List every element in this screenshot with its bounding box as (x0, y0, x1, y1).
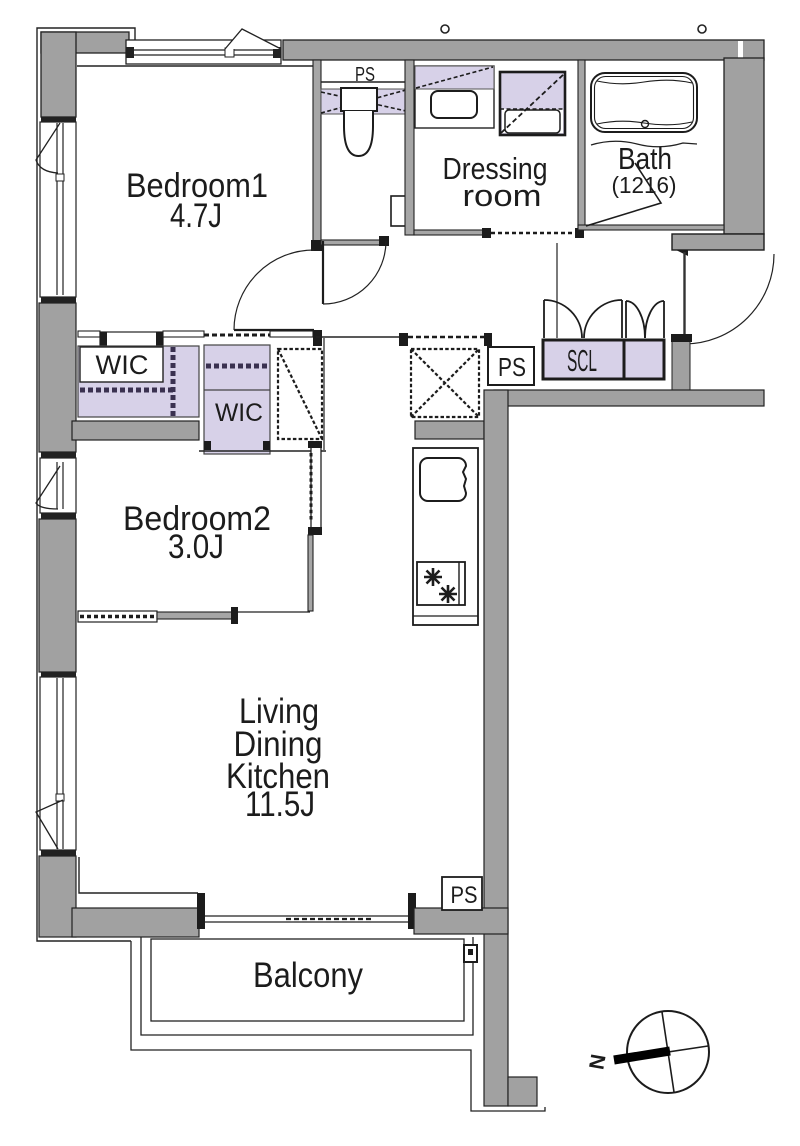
svg-text:4.7J: 4.7J (170, 197, 222, 235)
svg-text:PS: PS (451, 882, 478, 909)
svg-text:PS: PS (498, 352, 526, 382)
svg-text:PS: PS (355, 64, 375, 86)
svg-text:11.5J: 11.5J (245, 785, 315, 824)
svg-text:SCL: SCL (567, 343, 597, 378)
svg-text:WIC: WIC (215, 399, 263, 427)
svg-text:room: room (463, 178, 542, 213)
svg-text:Bath: Bath (618, 141, 672, 176)
svg-text:Balcony: Balcony (253, 956, 363, 995)
svg-text:3.0J: 3.0J (168, 528, 224, 566)
svg-text:WIC: WIC (96, 350, 149, 380)
